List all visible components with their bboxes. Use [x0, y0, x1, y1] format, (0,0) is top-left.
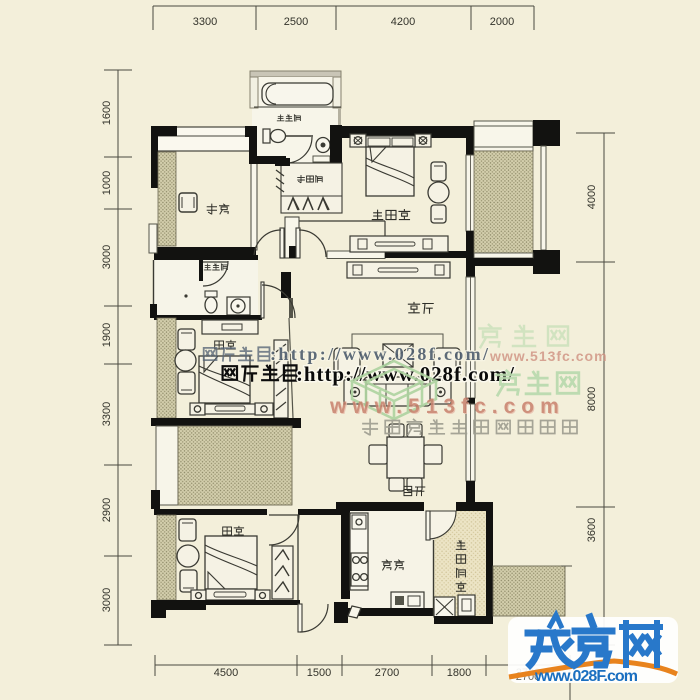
svg-text:2700: 2700 [375, 667, 399, 679]
svg-text:1000: 1000 [101, 171, 113, 195]
svg-text:www.513fc.com: www.513fc.com [329, 395, 565, 418]
svg-text:1900: 1900 [101, 323, 113, 347]
svg-text:2500: 2500 [284, 16, 308, 28]
svg-text:3300: 3300 [101, 402, 113, 426]
svg-text:4500: 4500 [214, 667, 238, 679]
svg-text::http://www.028f.com/: :http://www.028f.com/ [270, 344, 489, 364]
svg-text:3000: 3000 [101, 588, 113, 612]
svg-text:2000: 2000 [490, 16, 514, 28]
svg-text:2900: 2900 [101, 498, 113, 522]
svg-text:3300: 3300 [193, 16, 217, 28]
svg-text:www.513fc.com: www.513fc.com [489, 348, 608, 364]
svg-text:1800: 1800 [447, 667, 471, 679]
svg-text:3000: 3000 [101, 245, 113, 269]
svg-text:4000: 4000 [586, 185, 598, 209]
svg-text:1600: 1600 [101, 101, 113, 125]
svg-text:3600: 3600 [586, 518, 598, 542]
svg-text:www.028F.com: www.028F.com [534, 668, 638, 685]
svg-text:8000: 8000 [586, 387, 598, 411]
svg-text:4200: 4200 [391, 16, 415, 28]
svg-text:1500: 1500 [307, 667, 331, 679]
